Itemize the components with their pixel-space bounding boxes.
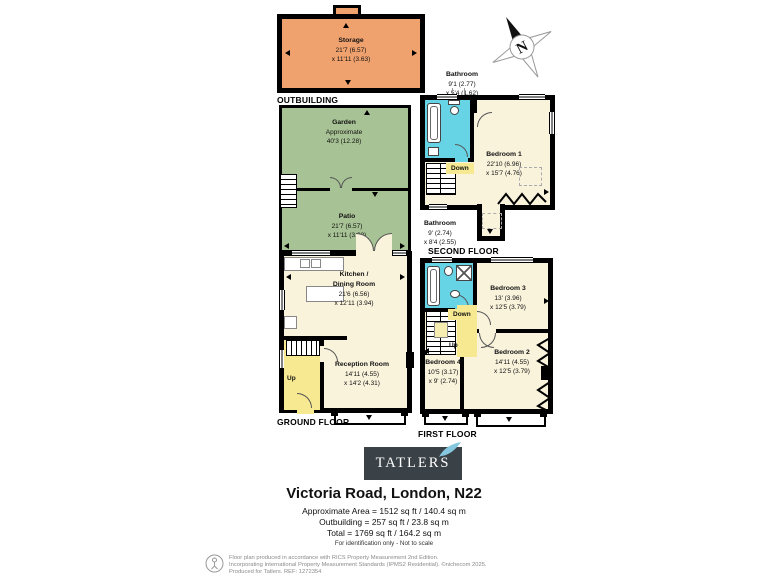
garden-divider-wall xyxy=(352,188,409,191)
bay-post xyxy=(540,410,547,417)
area-line-2: Outbuilding = 257 sq ft / 23.8 sq m xyxy=(0,517,768,527)
toilet-icon xyxy=(448,100,460,105)
storage-label: Storage 21'7 (6.57) x 11'11 (3.63) xyxy=(303,36,399,65)
down-label: Down xyxy=(448,309,476,320)
disclaimer-line-3: Produced for Tatlers. REF: 1272354 xyxy=(229,569,321,576)
bay-post xyxy=(462,410,469,417)
wardrobe-dashed-box xyxy=(482,213,502,229)
toilet-icon xyxy=(444,266,453,276)
window xyxy=(491,257,533,263)
measure-arrow-icon xyxy=(442,416,448,421)
down-label: Down xyxy=(446,163,474,174)
kitchen-sink-icon xyxy=(311,259,321,268)
leaf-icon xyxy=(437,441,463,459)
stair-landing-square xyxy=(434,322,448,338)
measure-arrow-icon xyxy=(412,50,417,56)
up-label: Up xyxy=(287,375,296,382)
window xyxy=(429,204,447,210)
kitchen-label: Kitchen / Dining Room 21'6 (6.56) x 12'1… xyxy=(312,270,396,309)
shower-icon xyxy=(456,265,472,281)
wall-stub xyxy=(473,95,477,113)
bay-post xyxy=(474,410,481,417)
oven-icon xyxy=(284,316,297,329)
floor-plan-page: Storage 21'7 (6.57) x 11'11 (3.63) OUTBU… xyxy=(0,0,768,576)
measure-arrow-icon xyxy=(284,243,289,249)
reception-label: Reception Room 14'11 (4.55) x 14'2 (4.31… xyxy=(320,360,404,389)
measure-arrow-icon xyxy=(345,80,351,85)
bedroom4-label: Bedroom 4 10'5 (3.17) x 9' (2.74) xyxy=(404,358,482,387)
up-label: Up xyxy=(449,342,458,349)
ground-floor-label: GROUND FLOOR xyxy=(277,417,349,427)
bay-post xyxy=(401,409,408,416)
garden-label: Garden Approximate 40'3 (12.28) xyxy=(302,118,386,147)
first-floor-label: FIRST FLOOR xyxy=(418,429,477,439)
measure-arrow-icon xyxy=(343,23,349,28)
property-address: Victoria Road, London, N22 xyxy=(0,485,768,502)
bathtub-icon xyxy=(427,266,440,306)
measure-arrow-icon xyxy=(285,50,290,56)
measure-arrow-icon xyxy=(364,110,370,115)
measure-arrow-icon xyxy=(506,417,512,422)
measure-arrow-icon xyxy=(286,274,291,280)
patio-label: Patio 21'7 (6.57) x 11'11 (3.63) xyxy=(305,212,389,241)
outbuilding-floor-label: OUTBUILDING xyxy=(277,95,338,105)
bathroom1-label: Bathroom 9' (2.74) x 8'4 (2.55) xyxy=(400,219,480,248)
window xyxy=(279,290,285,310)
measure-arrow-icon xyxy=(487,229,493,234)
staircase xyxy=(286,340,320,356)
toilet-icon xyxy=(450,106,459,115)
window xyxy=(437,94,457,100)
area-line-1: Approximate Area = 1512 sq ft / 140.4 sq… xyxy=(0,506,768,516)
front-door-gap xyxy=(297,407,314,414)
garden-steps xyxy=(280,174,297,208)
measure-arrow-icon xyxy=(544,298,549,304)
zigzag-eaves xyxy=(496,190,552,208)
measure-arrow-icon xyxy=(366,415,372,420)
window xyxy=(292,250,330,256)
sink-icon xyxy=(450,290,460,298)
area-line-3: Total = 1769 sq ft / 164.2 sq m xyxy=(0,528,768,538)
chimney-breast xyxy=(541,366,553,380)
bay-post xyxy=(331,409,338,416)
wardrobe-dashed-box xyxy=(519,167,542,186)
measure-arrow-icon xyxy=(424,348,429,354)
window xyxy=(393,250,406,256)
nichecom-logo-icon xyxy=(205,554,224,573)
bathtub-icon xyxy=(427,103,441,143)
bay-post xyxy=(422,410,429,417)
window xyxy=(432,257,452,263)
kitchen-sink-icon xyxy=(300,259,310,268)
stair-center-line xyxy=(440,163,441,195)
window xyxy=(519,94,545,100)
identification-note: For identification only - Not to scale xyxy=(0,540,768,547)
window xyxy=(549,112,555,134)
bedroom3-label: Bedroom 3 13' (3.96) x 12'5 (3.79) xyxy=(468,284,548,313)
measure-arrow-icon xyxy=(400,274,405,280)
sink-icon xyxy=(428,147,439,156)
measure-arrow-icon xyxy=(372,192,378,197)
